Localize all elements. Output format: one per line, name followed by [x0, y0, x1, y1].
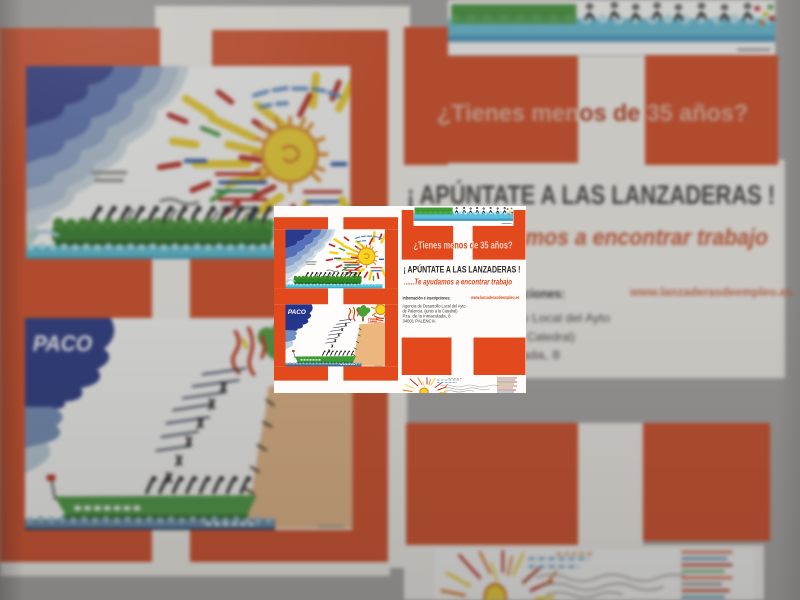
svg-text:¡ APÚNTATE A LAS LANZADERAS !: ¡ APÚNTATE A LAS LANZADERAS !: [404, 263, 521, 274]
svg-text:34001 PALENCIA: 34001 PALENCIA: [403, 318, 436, 323]
svg-text:......Te ayudamos a encontrar: ......Te ayudamos a encontrar trabajo: [404, 278, 512, 287]
svg-text:www.lanzaderasdeempleo.es: www.lanzaderasdeempleo.es: [470, 295, 520, 300]
svg-text:Información e Inscripciones:: Información e Inscripciones:: [403, 295, 451, 300]
